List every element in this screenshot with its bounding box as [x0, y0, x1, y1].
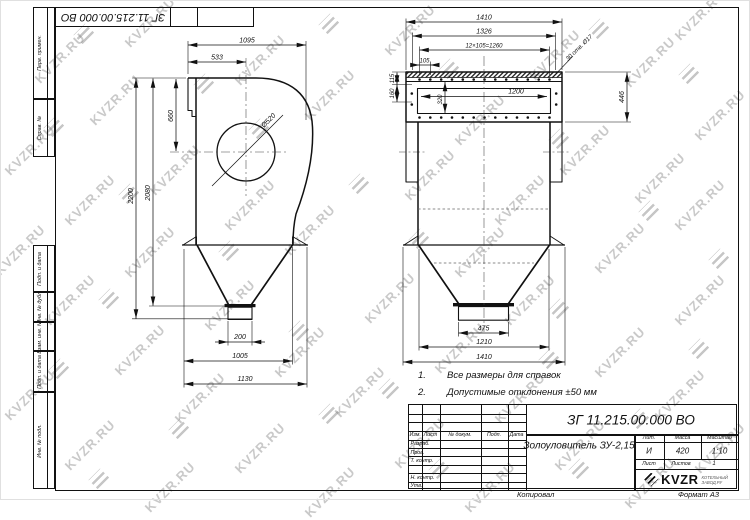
- top-stamp-doc-cell: ЗГ 11.215.00.000 ВО: [56, 8, 171, 26]
- tb-scale-label: Масштаб: [707, 435, 732, 441]
- margin-label: Подп. и дата: [37, 355, 43, 389]
- dim-top-width: 1095: [239, 38, 255, 45]
- dim-opening-height: 320: [438, 94, 444, 105]
- margin-label: Инв. № подл.: [37, 424, 43, 457]
- dim-inlet-height: 660: [168, 110, 175, 122]
- top-stamp-doc-number: ЗГ 11.215.00.000 ВО: [61, 11, 165, 23]
- dim-base-width: 1130: [237, 376, 252, 383]
- dim-flange-width: 1410: [476, 15, 492, 22]
- margin-label: Инв. № дубл.: [37, 290, 43, 323]
- dim-inlet-width: 533: [211, 55, 223, 62]
- footer-copy: Копировал: [517, 490, 554, 499]
- kvzr-logo-subtext: КОТЕЛЬНЫЙ ЗАВОД.РУ: [702, 475, 728, 485]
- note-2-number: 2.: [418, 387, 426, 398]
- kvzr-logo-sub2: ЗАВОД.РУ: [702, 480, 728, 485]
- margin-box-podp1: Подп. и дата: [33, 245, 55, 292]
- dim-outlet-width: 200: [233, 334, 246, 341]
- dim-height-inner: 2080: [145, 185, 152, 202]
- margin-box-inv-dubl: Инв. № дубл.: [33, 292, 55, 322]
- margin-label: Справ. №: [37, 116, 43, 141]
- margin-box-inv-podl: Инв. № подл.: [33, 392, 55, 489]
- dim-base-width: 1410: [476, 354, 492, 361]
- margin-box-perv: Перв. примен.: [33, 7, 55, 99]
- tb-lit-value: И: [646, 446, 652, 455]
- tb-header-doc: № докум.: [448, 432, 471, 438]
- right-view: [399, 56, 569, 332]
- left-view: [170, 58, 313, 320]
- tb-sheets-label: Листов: [671, 461, 690, 467]
- note-1-number: 1.: [418, 370, 426, 381]
- tb-doc-number: ЗГ 11.215.00.000 ВО: [567, 412, 695, 427]
- outlet-flange: [453, 303, 514, 306]
- top-stamp-empty-cell: [171, 8, 198, 26]
- margin-label: Перв. примен.: [37, 35, 43, 71]
- note-1-text: Все размеры для справок: [447, 370, 561, 381]
- tb-mass-label: Масса: [675, 435, 691, 441]
- tb-scale-value: 1:10: [712, 446, 728, 455]
- tb-row-razrab: Разраб.: [411, 441, 430, 447]
- margin-box-vzam: Взам. инв. №: [33, 322, 55, 351]
- dim-flange-height: 446: [619, 91, 626, 103]
- tb-header-list: Лист: [424, 432, 438, 438]
- margin-box-podp2: Подп. и дата: [33, 351, 55, 392]
- tb-lit-label: Лит.: [643, 435, 655, 441]
- tb-row-utv: Утв.: [411, 483, 423, 489]
- dim-flange-width-inner: 1326: [476, 29, 492, 36]
- tb-sheet-label: Лист: [642, 461, 656, 467]
- footer-format: Формат А3: [678, 490, 719, 499]
- tb-row-n-kontr: Н. контр.: [411, 475, 435, 481]
- dim-bottom-width: 1005: [232, 353, 248, 360]
- dim-holes-pitch: 12×105=1260: [465, 44, 503, 50]
- margin-label: Взам. инв. №: [37, 320, 43, 353]
- dim-scroll-diameter: Ø520: [260, 112, 278, 130]
- dim-edge-offset: 115: [390, 73, 396, 83]
- tb-header-podp: Подп.: [487, 432, 501, 438]
- top-stamp: ЗГ 11.215.00.000 ВО: [55, 7, 254, 27]
- dim-height-total: 2200: [128, 188, 135, 205]
- holes-note: 30 отв. Ø17: [565, 34, 594, 63]
- dim-hole-offset: 105: [419, 59, 430, 65]
- dim-hopper-width: 1210: [476, 339, 492, 346]
- tb-mass-value: 420: [676, 446, 689, 455]
- margin-box-sprav: Справ. №: [33, 99, 55, 157]
- dim-row-spacing: 160: [390, 88, 396, 99]
- left-view-dimensions: 1095 533 660 2200 2080 Ø520 200 1005 113…: [128, 38, 307, 388]
- tb-header-izm: Изм.: [410, 432, 421, 438]
- kvzr-logo-icon: [644, 473, 658, 487]
- drawing-page: { "watermark": { "text": "KVZR.RU", "tex…: [0, 0, 750, 500]
- dim-opening-width: 1200: [508, 89, 524, 96]
- margin-label: Подп. и дата: [37, 252, 43, 286]
- dim-outlet-width: 475: [478, 326, 490, 333]
- kvzr-logo-text: KVZR: [661, 472, 698, 487]
- tb-row-prov: Пров.: [411, 450, 425, 456]
- note-2-text: Допустимые отклонения ±50 мм: [447, 387, 597, 398]
- tb-sheets-value: 1: [712, 461, 715, 467]
- tb-row-t-kontr: Т. контр.: [411, 458, 434, 464]
- title-block: Изм. Лист № докум. Подп. Дата Разраб. Пр…: [408, 404, 737, 489]
- right-view-dimensions: 1410 1326 12×105=1260 105 115 160 320 12…: [390, 15, 631, 366]
- tb-logo-cell: KVZR КОТЕЛЬНЫЙ ЗАВОД.РУ: [634, 469, 738, 490]
- tb-header-data: Дата: [510, 432, 524, 438]
- tb-part-name: Золоуловитель ЗУ-2,15: [523, 441, 634, 452]
